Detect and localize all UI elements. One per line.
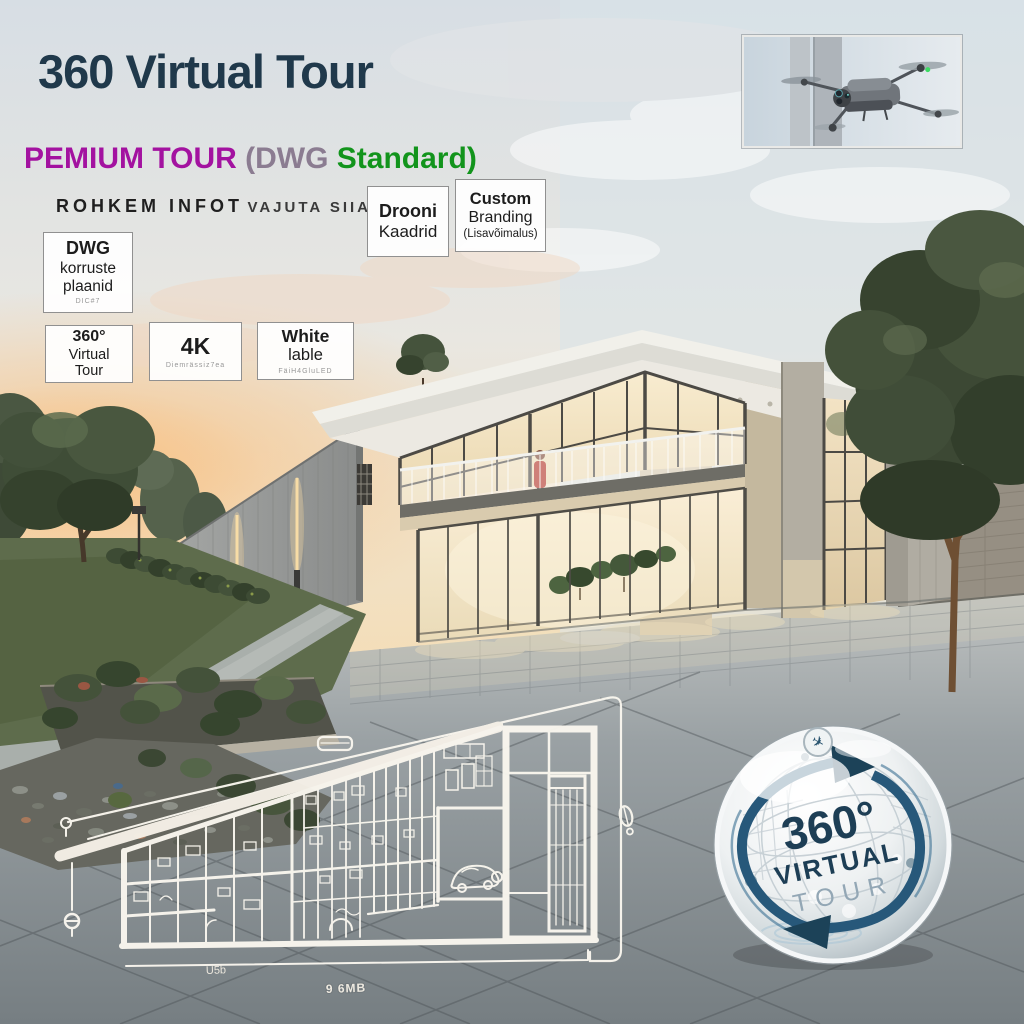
- feature-line: plaanid: [63, 278, 113, 296]
- plane-icon: ✈: [804, 728, 832, 756]
- page-title: 360 Virtual Tour: [38, 44, 373, 99]
- feature-box-white-label: White lable FäiH4GluLED: [257, 322, 354, 380]
- feature-box-drone-footage: Drooni Kaadrid: [367, 186, 449, 257]
- subtitle-premium: PEMIUM TOUR: [24, 142, 245, 175]
- drone-photo: [742, 35, 962, 148]
- feature-box-dwg-plans: DWG korruste plaanid DIC#7: [43, 232, 133, 313]
- poster-canvas: U5b 9 6MB: [0, 0, 1024, 1024]
- feature-box-4k: 4K Diemrässiz7ea: [149, 322, 242, 381]
- feature-line: Custom: [470, 190, 531, 209]
- feature-line: Branding: [468, 209, 532, 227]
- feature-tiny-text: DIC#7: [76, 298, 101, 306]
- feature-line: Tour: [75, 363, 103, 380]
- subtitle-standard: Standard: [328, 142, 466, 175]
- feature-tiny-text: FäiH4GluLED: [278, 368, 332, 376]
- feature-tiny-text: Diemrässiz7ea: [166, 362, 225, 370]
- feature-line: (Lisavõimalus): [463, 228, 537, 241]
- plan-label-bottom: 9 6MB: [326, 981, 367, 996]
- feature-line: White: [282, 326, 330, 347]
- feature-line: Virtual: [69, 347, 110, 364]
- feature-line: korruste: [60, 260, 116, 278]
- subtitle-dwg: DWG: [255, 142, 328, 175]
- subtitle-paren-close: ): [467, 142, 477, 175]
- plan-label-left: U5b: [206, 964, 227, 977]
- subtitle-paren-open: (: [245, 142, 255, 175]
- feature-line: Kaadrid: [379, 222, 438, 242]
- feature-line: lable: [288, 346, 323, 365]
- info-rest-text: VAJUTA SIIA: [247, 199, 371, 216]
- feature-line: DWG: [66, 238, 110, 259]
- feature-line: 360°: [72, 328, 105, 346]
- subtitle: PEMIUM TOUR (DWG Standard): [24, 142, 477, 176]
- more-info-link[interactable]: ROHKEM INFOT VAJUTA SIIA: [56, 196, 371, 217]
- feature-box-360-tour: 360° Virtual Tour: [45, 325, 133, 383]
- feature-line: 4K: [181, 333, 210, 360]
- feature-box-custom-branding: Custom Branding (Lisavõimalus): [455, 179, 546, 252]
- info-strong-text: ROHKEM INFOT: [56, 196, 243, 216]
- drone-photo-art: [744, 37, 960, 146]
- feature-line: Drooni: [379, 201, 437, 222]
